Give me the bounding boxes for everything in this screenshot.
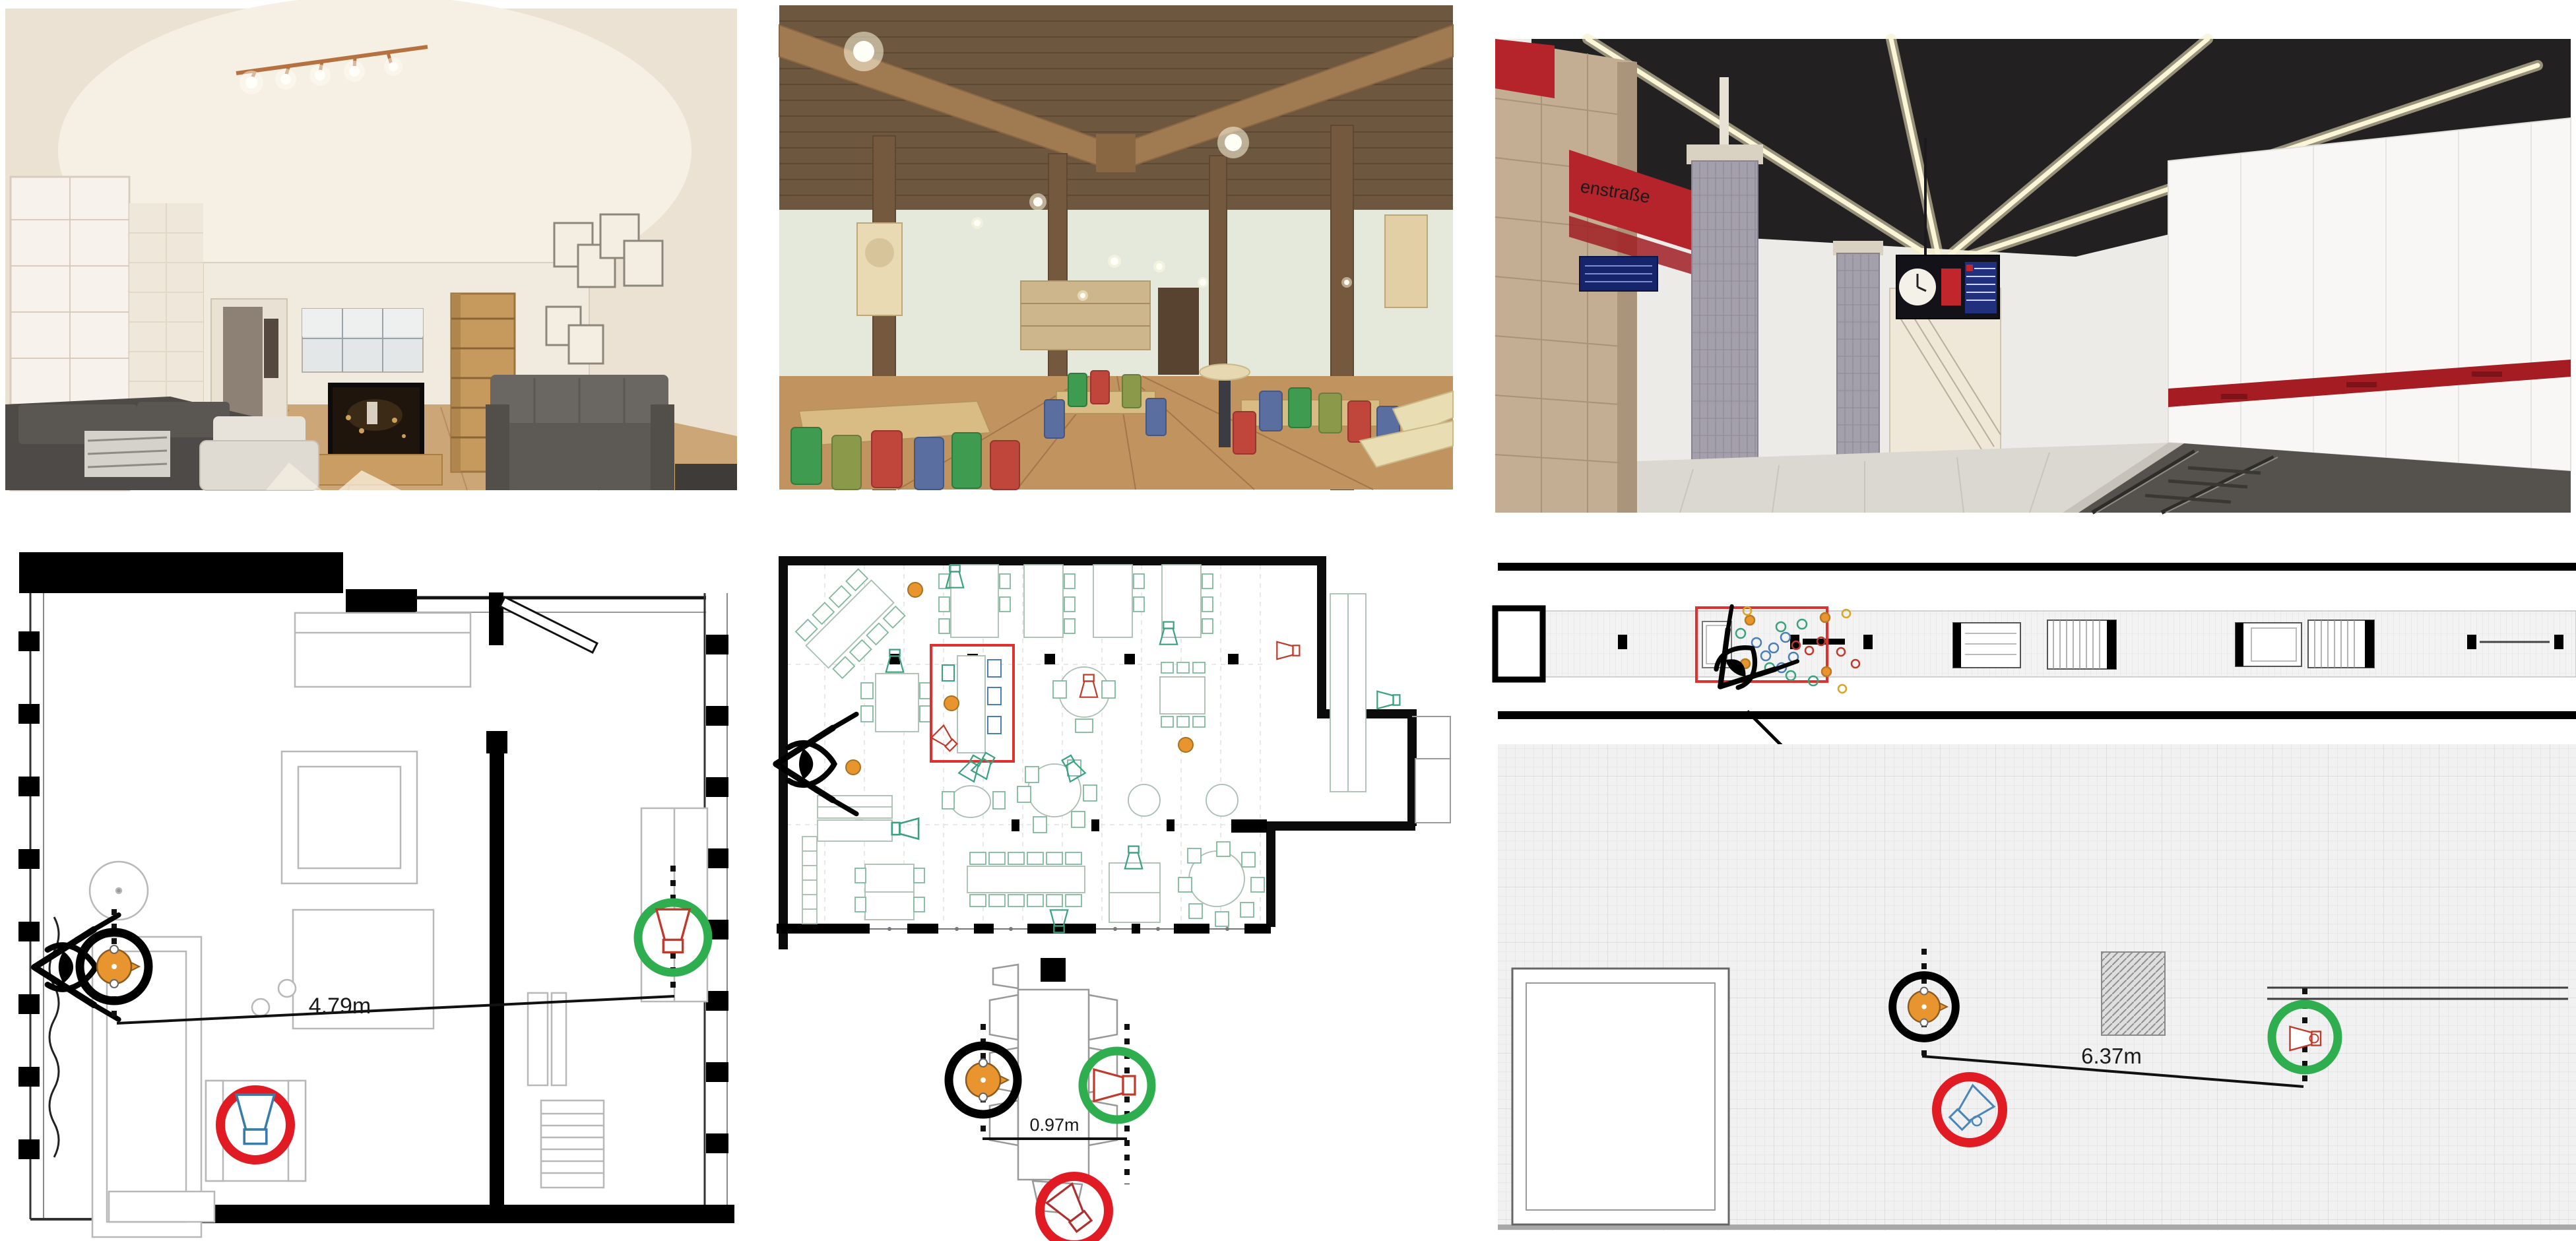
figure-canvas: enstraße (0, 0, 2576, 1241)
distance-label: 6.37m (2081, 1044, 2142, 1068)
render-restaurant (779, 5, 1453, 490)
wall-poster-right (1385, 215, 1427, 307)
zoom-detail-restaurant: 0.97m (949, 958, 1151, 1241)
speaker-icon (959, 753, 985, 782)
window-blocks-right (706, 635, 728, 1153)
structure-box (1495, 608, 1543, 680)
speaker-icon (1094, 1069, 1135, 1101)
floorplan-living-room: 4.79m (18, 552, 734, 1237)
person-dot (944, 696, 959, 711)
furniture (90, 613, 707, 1237)
render-subway: enstraße (1495, 39, 2571, 513)
zoom-detail-subway: 6.37m (1498, 744, 2576, 1230)
tiled-pillar-2 (1833, 241, 1883, 471)
hatched-obstacle (2102, 952, 2165, 1035)
floorplan-subway: 6.37m (1495, 563, 2576, 1230)
divider-wall (490, 740, 504, 1213)
distance-label: 4.79m (309, 994, 371, 1019)
speaker-icon (931, 725, 959, 753)
wall-poster-left (857, 223, 902, 315)
distance-label: 0.97m (1029, 1115, 1079, 1135)
standing-table (1219, 375, 1231, 447)
door-leaf (500, 597, 597, 652)
platform-strip-plan (1495, 563, 2576, 752)
render-living-room (5, 0, 737, 490)
glossy-wall-right (2168, 118, 2571, 471)
window-blocks-left (18, 631, 40, 1159)
floorplan-restaurant: 0.97m (776, 561, 1450, 1241)
furniture (794, 565, 1366, 926)
sofa-right (486, 375, 674, 490)
